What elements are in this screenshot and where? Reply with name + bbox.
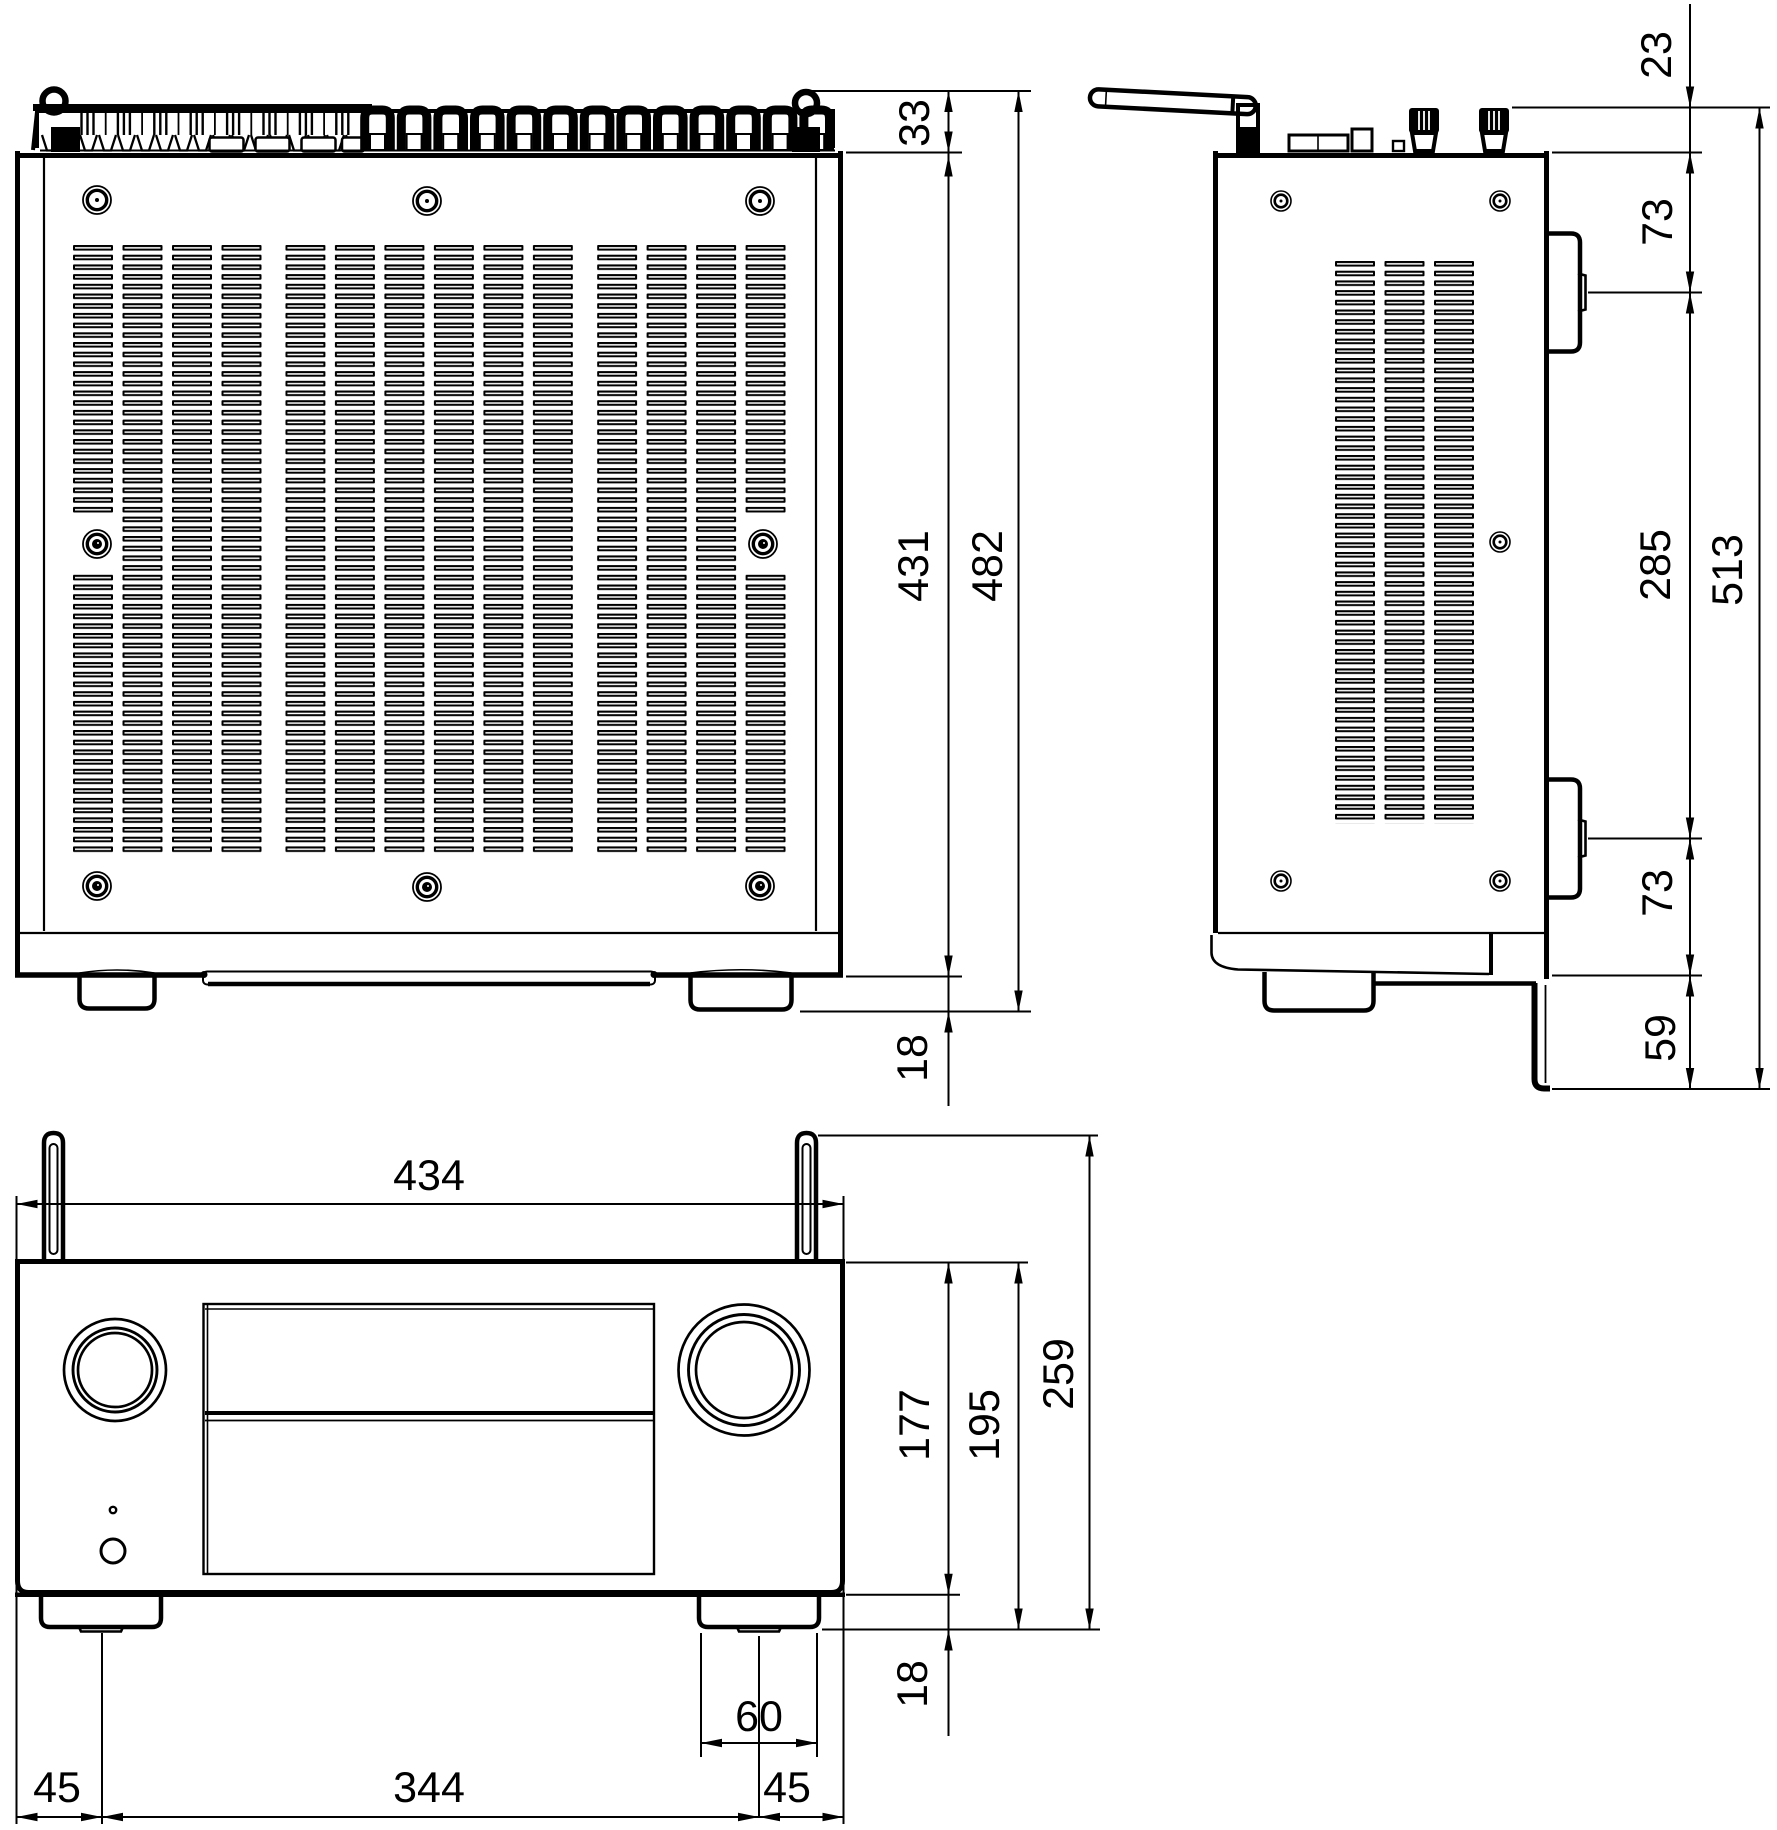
svg-text:482: 482 — [964, 530, 1012, 602]
svg-text:45: 45 — [33, 1764, 81, 1812]
svg-text:18: 18 — [889, 1034, 937, 1082]
svg-text:431: 431 — [890, 530, 938, 602]
svg-text:195: 195 — [961, 1389, 1009, 1461]
svg-text:60: 60 — [735, 1693, 783, 1741]
svg-text:434: 434 — [393, 1152, 465, 1200]
svg-text:45: 45 — [763, 1764, 811, 1812]
svg-text:73: 73 — [1634, 198, 1682, 246]
svg-text:177: 177 — [891, 1389, 939, 1461]
svg-text:259: 259 — [1035, 1338, 1083, 1410]
svg-text:18: 18 — [889, 1660, 937, 1708]
svg-text:33: 33 — [891, 99, 939, 147]
svg-text:59: 59 — [1637, 1014, 1685, 1062]
svg-text:73: 73 — [1634, 869, 1682, 917]
svg-text:513: 513 — [1704, 534, 1752, 606]
svg-text:285: 285 — [1632, 529, 1680, 601]
svg-text:23: 23 — [1633, 31, 1681, 79]
svg-text:344: 344 — [393, 1764, 465, 1812]
